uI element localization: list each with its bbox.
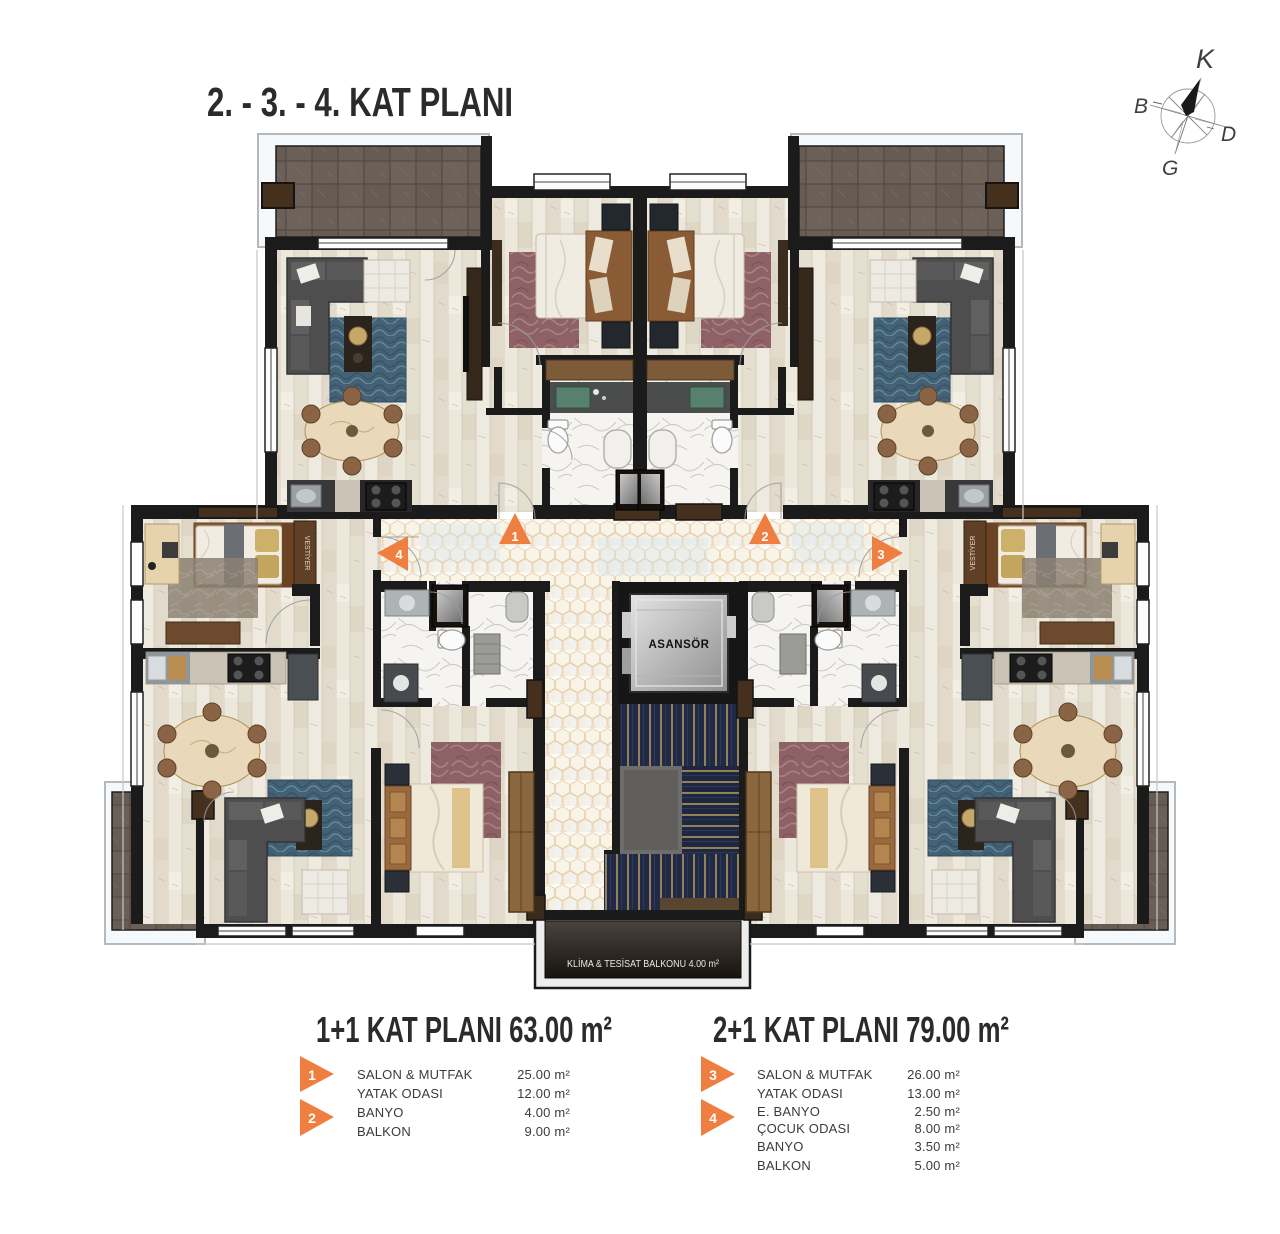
svg-text:BANYO: BANYO xyxy=(357,1105,404,1120)
svg-text:G: G xyxy=(1162,157,1178,180)
svg-text:BALKON: BALKON xyxy=(757,1158,811,1173)
svg-text:3.50 m²: 3.50 m² xyxy=(915,1139,961,1154)
svg-text:1+1 KAT PLANI 63.00 m²: 1+1 KAT PLANI 63.00 m² xyxy=(316,1009,612,1050)
svg-text:B: B xyxy=(1134,95,1148,118)
svg-text:3: 3 xyxy=(709,1067,717,1083)
svg-text:9.00 m²: 9.00 m² xyxy=(525,1124,571,1139)
svg-text:2: 2 xyxy=(761,529,768,544)
svg-text:ÇOCUK ODASI: ÇOCUK ODASI xyxy=(757,1121,850,1136)
svg-text:BANYO: BANYO xyxy=(757,1139,804,1154)
svg-text:2. - 3. - 4. KAT PLANI: 2. - 3. - 4. KAT PLANI xyxy=(207,79,513,125)
svg-text:26.00 m²: 26.00 m² xyxy=(907,1067,960,1082)
svg-text:SALON & MUTFAK: SALON & MUTFAK xyxy=(757,1067,873,1082)
svg-text:4.00 m²: 4.00 m² xyxy=(525,1105,571,1120)
svg-text:25.00 m²: 25.00 m² xyxy=(517,1067,570,1082)
svg-text:ASANSÖR: ASANSÖR xyxy=(648,638,709,651)
svg-text:2: 2 xyxy=(308,1110,316,1126)
svg-text:KLİMA & TESİSAT BALKONU 4.00 m: KLİMA & TESİSAT BALKONU 4.00 m² xyxy=(567,957,720,970)
svg-text:12.00 m²: 12.00 m² xyxy=(517,1086,570,1101)
svg-text:SALON & MUTFAK: SALON & MUTFAK xyxy=(357,1067,473,1082)
svg-text:13.00 m²: 13.00 m² xyxy=(907,1086,960,1101)
svg-text:5.00 m²: 5.00 m² xyxy=(915,1158,961,1173)
svg-text:E. BANYO: E. BANYO xyxy=(757,1104,820,1119)
svg-text:YATAK ODASI: YATAK ODASI xyxy=(357,1086,443,1101)
svg-text:2.50 m²: 2.50 m² xyxy=(915,1104,961,1119)
svg-text:BALKON: BALKON xyxy=(357,1124,411,1139)
svg-text:4: 4 xyxy=(709,1110,717,1126)
svg-text:VESTİYER: VESTİYER xyxy=(303,536,312,571)
svg-text:3: 3 xyxy=(877,547,884,562)
svg-text:D: D xyxy=(1221,123,1236,146)
svg-text:1: 1 xyxy=(308,1067,316,1083)
svg-text:K: K xyxy=(1196,44,1215,74)
svg-text:2+1 KAT PLANI 79.00 m²: 2+1 KAT PLANI 79.00 m² xyxy=(713,1009,1009,1050)
svg-text:1: 1 xyxy=(511,529,518,544)
svg-text:8.00 m²: 8.00 m² xyxy=(915,1121,961,1136)
svg-text:VESTİYER: VESTİYER xyxy=(968,536,977,571)
svg-text:4: 4 xyxy=(395,547,403,562)
svg-text:YATAK ODASI: YATAK ODASI xyxy=(757,1086,843,1101)
